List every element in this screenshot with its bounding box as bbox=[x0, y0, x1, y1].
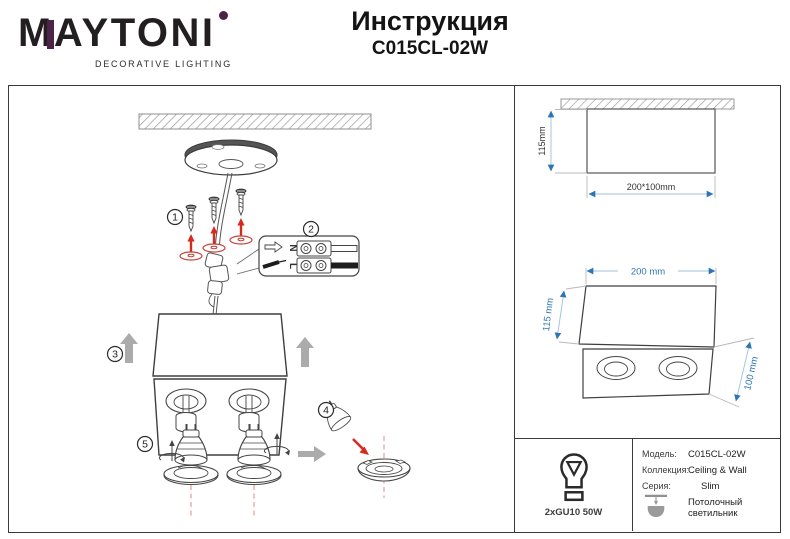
ceiling-hatch bbox=[139, 114, 371, 129]
step-5-badge: 5 bbox=[142, 439, 148, 451]
content-frame: N L bbox=[8, 85, 781, 533]
logo-purple-stem bbox=[47, 20, 54, 49]
terminal-n-label: N bbox=[287, 244, 298, 251]
series-value: Slim bbox=[701, 481, 719, 492]
step-4-badge: 4 bbox=[323, 405, 329, 417]
dim-side-footprint: 200*100mm bbox=[627, 182, 676, 192]
spec-row-series: Серия: Slim bbox=[642, 481, 776, 492]
spec-row-type: Потолочный светильник bbox=[642, 497, 776, 519]
mounting-plate bbox=[185, 140, 277, 175]
model-number: C015CL-02W bbox=[290, 38, 570, 60]
dim-side-height: 115mm bbox=[537, 126, 547, 155]
dimensions-panel: 115mm 200*100mm bbox=[515, 86, 780, 532]
installation-panel: N L bbox=[9, 86, 515, 532]
wiring-callout: N L bbox=[237, 236, 359, 276]
brand-name: MAYTONI bbox=[18, 10, 234, 56]
brand-tagline: DECORATIVE LIGHTING bbox=[18, 59, 232, 69]
spec-row-model: Модель: C015CL-02W bbox=[642, 449, 776, 460]
step-1-badge: 1 bbox=[172, 212, 178, 224]
step-3-badge: 3 bbox=[112, 349, 118, 361]
dim-iso-height: 115 mm bbox=[541, 297, 556, 332]
step-2-badge: 2 bbox=[308, 224, 314, 236]
terminal-l-label: L bbox=[287, 263, 298, 269]
cable-connector bbox=[205, 252, 230, 307]
brand-logo: MAYTONI DECORATIVE LIGHTING bbox=[18, 10, 234, 69]
type-value: Потолочный светильник bbox=[688, 497, 776, 519]
model-label: Модель: bbox=[642, 449, 688, 460]
series-label: Серия: bbox=[642, 481, 688, 492]
page-title: Инструкция bbox=[290, 6, 570, 37]
product-spec-cell: Модель: C015CL-02W Коллекция: Ceiling & … bbox=[633, 439, 780, 531]
spec-table: 2xGU10 50W Модель: C015CL-02W Коллекция:… bbox=[515, 438, 780, 531]
lamp-spec: 2xGU10 50W bbox=[545, 507, 603, 518]
step1-screws bbox=[180, 189, 252, 260]
side-view: 115mm 200*100mm bbox=[537, 99, 734, 198]
ceiling-light-icon bbox=[644, 494, 668, 518]
fixture-box bbox=[153, 314, 287, 455]
title-block: Инструкция C015CL-02W bbox=[290, 6, 570, 60]
logo-i-dot-icon bbox=[219, 11, 228, 20]
collection-value: Ceiling & Wall bbox=[688, 465, 747, 476]
collection-label: Коллекция: bbox=[642, 465, 688, 476]
lamp-spec-cell: 2xGU10 50W bbox=[515, 439, 633, 531]
spec-row-collection: Коллекция: Ceiling & Wall bbox=[642, 465, 776, 476]
installation-diagram: N L bbox=[9, 86, 513, 531]
model-value: C015CL-02W bbox=[688, 449, 746, 460]
iso-view: 200 mm 115 mm 100 mm bbox=[541, 267, 761, 408]
dimension-diagram: 115mm 200*100mm bbox=[515, 86, 780, 438]
dim-iso-width: 200 mm bbox=[631, 267, 665, 278]
instruction-sheet: MAYTONI DECORATIVE LIGHTING Инструкция C… bbox=[0, 0, 790, 539]
gu10-bulb-icon bbox=[554, 452, 594, 504]
step4-insert bbox=[298, 396, 410, 481]
